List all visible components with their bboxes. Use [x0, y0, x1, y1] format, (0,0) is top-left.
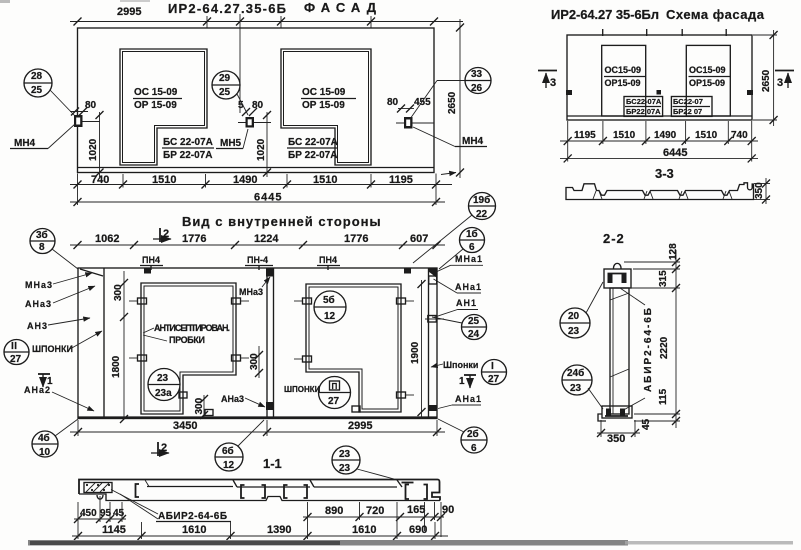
svg-text:АНа3: АНа3 — [25, 299, 52, 309]
svg-text:5б: 5б — [323, 294, 335, 306]
svg-text:22: 22 — [476, 209, 488, 220]
svg-text:БР22 07: БР22 07 — [673, 107, 702, 116]
svg-text:3б: 3б — [36, 229, 48, 241]
svg-text:300: 300 — [194, 397, 205, 414]
svg-text:2995: 2995 — [348, 420, 372, 432]
svg-text:350: 350 — [607, 433, 625, 445]
svg-text:1б: 1б — [466, 228, 478, 240]
svg-text:ОР 15-09: ОР 15-09 — [134, 100, 177, 111]
svg-text:90: 90 — [442, 504, 454, 516]
svg-text:ШПОНКИ: ШПОНКИ — [32, 344, 73, 354]
svg-text:ОР 15-09: ОР 15-09 — [302, 100, 345, 111]
svg-text:27: 27 — [488, 374, 500, 385]
svg-text:2: 2 — [161, 442, 167, 454]
svg-text:455: 455 — [414, 97, 431, 108]
svg-text:720: 720 — [366, 505, 384, 517]
svg-text:300: 300 — [113, 284, 124, 301]
svg-text:ПН4: ПН4 — [319, 255, 337, 265]
svg-text:24: 24 — [468, 329, 480, 340]
svg-text:6: 6 — [471, 443, 477, 454]
svg-text:ОС15-09: ОС15-09 — [689, 65, 726, 75]
svg-text:Схема фасада: Схема фасада — [666, 7, 765, 22]
svg-text:350: 350 — [754, 182, 765, 199]
svg-text:165: 165 — [407, 504, 425, 516]
svg-text:МН4: МН4 — [14, 138, 36, 149]
svg-text:12: 12 — [223, 460, 235, 471]
svg-text:1776: 1776 — [182, 233, 206, 245]
svg-text:315: 315 — [658, 270, 669, 287]
svg-text:27: 27 — [10, 354, 22, 365]
svg-text:МН4: МН4 — [462, 136, 484, 147]
svg-text:1776: 1776 — [344, 233, 368, 245]
svg-text:1062: 1062 — [95, 233, 119, 245]
svg-text:23: 23 — [570, 383, 582, 394]
svg-text:80: 80 — [252, 100, 264, 111]
svg-text:27: 27 — [328, 396, 340, 407]
svg-text:ИР2-64.27 35-6Бл: ИР2-64.27 35-6Бл — [551, 7, 659, 22]
svg-text:П: П — [332, 382, 338, 391]
svg-text:450: 450 — [80, 508, 97, 519]
svg-text:29: 29 — [219, 73, 231, 84]
svg-text:23а: 23а — [155, 388, 172, 399]
svg-text:ОР15-09: ОР15-09 — [689, 78, 725, 88]
svg-text:АН3: АН3 — [27, 321, 48, 331]
svg-text:2б: 2б — [467, 428, 479, 440]
svg-text:45: 45 — [641, 418, 652, 430]
svg-text:АБИР2-64-6Б: АБИР2-64-6Б — [158, 511, 227, 522]
svg-text:ПРОБКИ: ПРОБКИ — [169, 335, 205, 345]
svg-text:740: 740 — [91, 174, 109, 186]
svg-text:690: 690 — [409, 524, 427, 536]
svg-text:33: 33 — [471, 69, 483, 80]
svg-text:БР 22-07А: БР 22-07А — [163, 150, 212, 161]
svg-text:20: 20 — [568, 311, 580, 322]
svg-text:БС22-07: БС22-07 — [673, 97, 703, 106]
svg-text:I: I — [491, 361, 494, 372]
svg-text:4б: 4б — [38, 432, 50, 444]
svg-text:1: 1 — [459, 376, 465, 387]
svg-text:2650: 2650 — [447, 91, 458, 114]
svg-text:740: 740 — [731, 130, 748, 141]
svg-text:23: 23 — [157, 373, 169, 384]
svg-text:1390: 1390 — [267, 524, 291, 536]
svg-text:3450: 3450 — [173, 420, 197, 432]
svg-text:ПН-4: ПН-4 — [247, 255, 268, 265]
svg-text:АН1: АН1 — [456, 298, 477, 308]
svg-text:1610: 1610 — [182, 524, 206, 536]
svg-text:6: 6 — [469, 242, 475, 253]
svg-text:II: II — [11, 341, 18, 352]
svg-text:Вид с внутренней стороны: Вид с внутренней стороны — [182, 214, 382, 229]
svg-text:2650: 2650 — [761, 69, 772, 92]
svg-text:БС 22-07А: БС 22-07А — [288, 137, 338, 148]
svg-text:АНа2: АНа2 — [24, 385, 51, 395]
svg-text:МНа3: МНа3 — [25, 280, 53, 290]
svg-text:2-2: 2-2 — [603, 231, 625, 246]
svg-text:3: 3 — [777, 77, 783, 89]
svg-text:1510: 1510 — [613, 130, 636, 141]
svg-text:1510: 1510 — [152, 174, 176, 186]
svg-text:8: 8 — [39, 242, 45, 253]
svg-text:1510: 1510 — [695, 130, 718, 141]
svg-text:2995: 2995 — [117, 6, 141, 18]
svg-text:МН5: МН5 — [220, 138, 242, 149]
svg-text:АНТИСЕПТИРОВАН.: АНТИСЕПТИРОВАН. — [154, 323, 230, 333]
svg-text:БС 22-07А: БС 22-07А — [163, 137, 213, 148]
svg-text:28: 28 — [31, 71, 43, 82]
svg-text:300: 300 — [249, 353, 260, 370]
svg-text:24б: 24б — [567, 367, 584, 379]
svg-text:1490: 1490 — [654, 130, 677, 141]
svg-text:ОС15-09: ОС15-09 — [605, 65, 642, 75]
svg-text:БР 22-07А: БР 22-07А — [288, 150, 337, 161]
svg-text:23: 23 — [568, 326, 580, 337]
svg-text:25: 25 — [31, 85, 43, 96]
svg-text:АНа3: АНа3 — [221, 394, 244, 404]
svg-text:1145: 1145 — [102, 524, 126, 536]
svg-text:ОС 15-09: ОС 15-09 — [134, 87, 178, 98]
svg-text:АНа1: АНа1 — [455, 394, 482, 404]
svg-text:12: 12 — [324, 311, 336, 322]
svg-text:23: 23 — [339, 463, 351, 474]
svg-text:1195: 1195 — [574, 130, 596, 141]
svg-text:6445: 6445 — [254, 192, 282, 204]
svg-text:ШПОНКИ: ШПОНКИ — [284, 385, 321, 394]
svg-text:МНа1: МНа1 — [455, 254, 483, 264]
svg-text:115: 115 — [658, 388, 669, 405]
svg-text:2220: 2220 — [659, 336, 670, 359]
svg-text:БР22 07А: БР22 07А — [626, 107, 661, 116]
svg-text:1020: 1020 — [256, 138, 267, 161]
svg-text:25: 25 — [468, 316, 480, 327]
svg-text:ИР2-64.27.35-6Б: ИР2-64.27.35-6Б — [168, 1, 286, 16]
svg-text:1490: 1490 — [233, 174, 257, 186]
svg-text:10: 10 — [39, 447, 51, 458]
svg-text:ОР15-09: ОР15-09 — [605, 78, 641, 88]
svg-text:БС22-07А: БС22-07А — [626, 97, 662, 106]
svg-text:Шпонки: Шпонки — [443, 360, 478, 370]
svg-text:2: 2 — [163, 228, 169, 240]
svg-text:1900: 1900 — [410, 341, 421, 364]
svg-text:25: 25 — [219, 87, 231, 98]
svg-text:1510: 1510 — [313, 174, 337, 186]
svg-text:26: 26 — [471, 83, 483, 94]
svg-text:3: 3 — [550, 77, 556, 89]
svg-text:3-3: 3-3 — [655, 166, 674, 181]
svg-text:80: 80 — [85, 100, 97, 111]
svg-text:23: 23 — [339, 449, 351, 460]
svg-text:1-1: 1-1 — [263, 456, 282, 471]
svg-text:МНа3: МНа3 — [239, 287, 263, 297]
svg-text:АНа1: АНа1 — [455, 282, 482, 292]
svg-text:1224: 1224 — [254, 233, 279, 245]
svg-text:1610: 1610 — [352, 524, 376, 536]
svg-text:6445: 6445 — [663, 147, 687, 159]
svg-text:ФАСАД: ФАСАД — [304, 0, 382, 15]
svg-text:890: 890 — [325, 505, 343, 517]
svg-text:1195: 1195 — [389, 174, 413, 186]
svg-text:607: 607 — [410, 233, 428, 245]
svg-text:19б: 19б — [473, 194, 490, 206]
svg-text:1800: 1800 — [111, 355, 122, 378]
svg-text:1020: 1020 — [88, 138, 99, 161]
svg-text:80: 80 — [387, 97, 399, 108]
svg-text:ПН4: ПН4 — [142, 255, 160, 265]
svg-text:6б: 6б — [222, 445, 234, 457]
svg-text:ОС 15-09: ОС 15-09 — [302, 87, 346, 98]
svg-text:128: 128 — [668, 243, 679, 260]
